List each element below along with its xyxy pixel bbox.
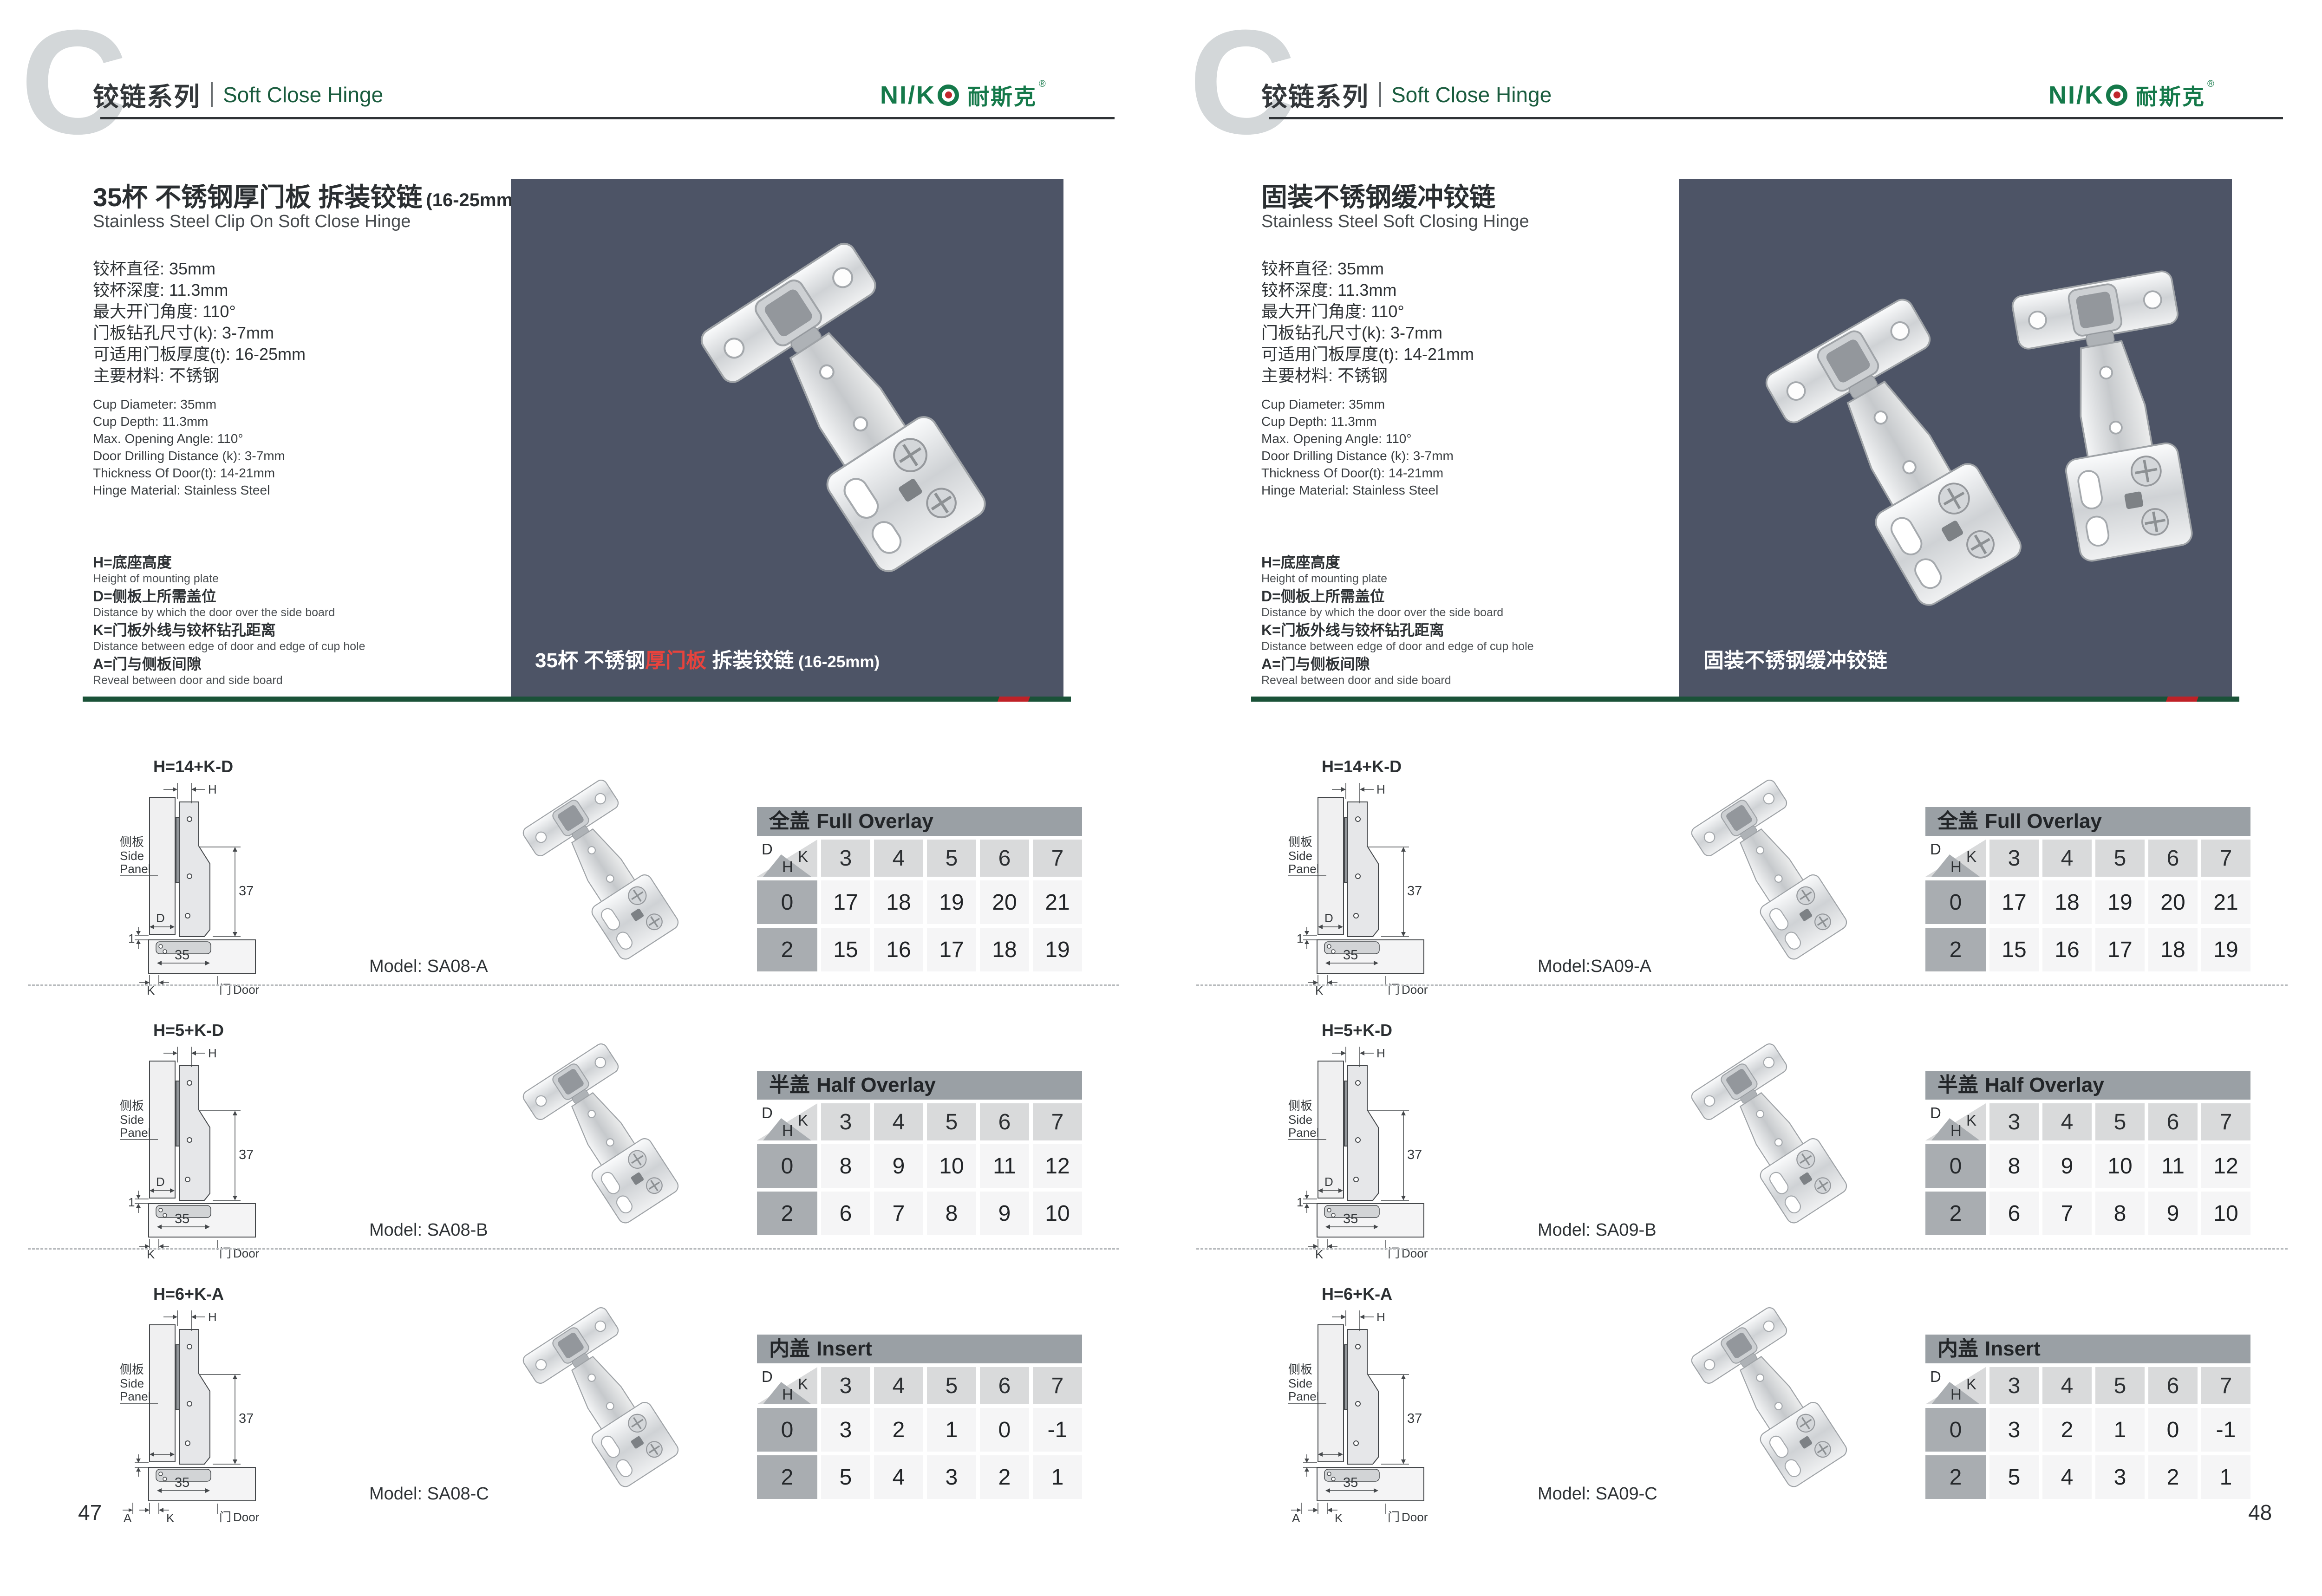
spec-line: 最大开门角度: 110° [1261,301,1474,322]
dimension-definitions: H=底座高度 Height of mounting plate D=侧板上所需盖… [1261,554,1534,689]
table-value: 1 [927,1408,976,1452]
dim-35-label: 35 [1343,948,1358,963]
table-value: 8 [1989,1144,2039,1188]
table-grid: D K H 3 4 5 6 7 0 17 18 19 20 21 2 [1925,840,2250,971]
spec-line: Max. Opening Angle: 110° [1261,430,1454,447]
brand-logo-registered: ® [2207,79,2214,90]
corner-h: H [782,1122,793,1140]
dim-35-label: 35 [175,948,189,963]
section-divider-red [998,697,1030,702]
table-value: 2 [980,1455,1029,1499]
table-value: 21 [2201,880,2250,924]
section-half-overlay: H=5+K-D H 侧板 Side Panel D 37 1 35 K 门 Do… [1168,1020,2322,1280]
k-header: 4 [2042,840,2092,877]
table-value: 3 [2095,1455,2145,1499]
series-title-cn: 铰链系列 [93,76,201,114]
brand-logo-dot-icon [2113,91,2120,98]
side-panel-label-cn: 侧板 [1288,1362,1312,1376]
brand-logo-cn: 耐斯克 [967,79,1037,111]
specs-cn: 铰杯直径: 35mm 铰杯深度: 11.3mm 最大开门角度: 110° 门板钻… [93,258,306,386]
brand-logo-dot-icon [945,91,952,98]
series-title-cn: 铰链系列 [1261,76,1369,114]
k-header: 5 [2095,840,2145,877]
spec-line: Door Drilling Distance (k): 3-7mm [1261,447,1454,464]
series-title-en: Soft Close Hinge [223,82,383,107]
side-panel-label-en: Side [120,1113,144,1127]
height-formula: H=14+K-D [1322,757,1402,776]
specs-en: Cup Diameter: 35mm Cup Depth: 11.3mm Max… [1261,396,1454,499]
dim-h-label: H [1376,1046,1385,1060]
row-separator [28,984,1119,986]
table-value: 10 [2095,1144,2145,1188]
spec-line: 门板钻孔尺寸(k): 3-7mm [1261,322,1474,344]
table-value: 16 [2042,928,2092,971]
brand-logo-o-icon [938,85,959,106]
side-panel-label-cn: 侧板 [120,835,144,849]
dim-h-label: H [1376,782,1385,796]
definition-en: Distance by which the door over the side… [93,605,365,620]
corner-h: H [1950,1122,1962,1140]
spec-line: Cup Depth: 11.3mm [93,413,285,430]
dim-1-label: 1 [1297,1195,1303,1209]
k-header: 7 [1033,840,1082,877]
table-value: 5 [1989,1455,2039,1499]
model-number: Model: SA08-A [369,957,488,977]
corner-h: H [782,858,793,876]
section-full-overlay: H=14+K-D H 侧板 Side Panel D 37 1 35 K 门 D… [0,756,1168,1016]
table-title-en: Half Overlay [816,1074,936,1096]
half-overlay-table: 半盖Half Overlay D K H 3 4 5 6 7 0 8 9 10 [757,1071,1082,1235]
section-full-overlay: H=14+K-D H 侧板 Side Panel D 37 1 35 K 门 D… [1168,756,2322,1016]
table-value: 2 [874,1408,923,1452]
model-number: Model: SA08-B [369,1220,488,1240]
k-header: 5 [2095,1367,2145,1404]
k-header: 7 [2201,1103,2250,1140]
definition-cn: H=底座高度 [1261,554,1534,571]
definition-cn: D=侧板上所需盖位 [1261,587,1534,605]
k-header: 4 [874,840,923,877]
side-panel-label-en: Panel [120,1126,151,1140]
k-header: 4 [874,1367,923,1404]
catalog-page-right: C 铰链系列 Soft Close Hinge NI/K 耐斯克 ® 固装不锈钢… [1168,0,2322,1596]
hinge-photo [1577,1023,1884,1241]
table-title-en: Full Overlay [816,810,933,833]
table-value: 1 [2095,1408,2145,1452]
table-value: 17 [1989,880,2039,924]
product-photo: 35杯 不锈钢厚门板 拆装铰链 (16-25mm) [511,179,1063,697]
side-panel-label-en: Panel [120,862,151,876]
table-title-cn: 内盖 [769,1337,810,1360]
spec-line: Max. Opening Angle: 110° [93,430,285,447]
table-value: 2 [2148,1455,2198,1499]
dim-d-label: D [156,911,165,925]
k-header: 7 [1033,1103,1082,1140]
dim-h-label: H [208,1046,217,1060]
table-corner-cell: D K H [1925,840,1986,877]
door-label-en: Door [1402,1510,1428,1524]
table-title-en: Insert [1985,1337,2041,1360]
table-value: 0 [980,1408,1029,1452]
brand-logo-o-icon [2106,85,2127,106]
brand-logo-latin: NI/K [2048,81,2104,110]
table-grid: D K H 3 4 5 6 7 0 8 9 10 11 12 2 6 [757,1103,1082,1235]
table-value: 20 [980,880,1029,924]
section-half-overlay: H=5+K-D H 侧板 Side Panel D 37 1 35 K 门 Do… [0,1020,1168,1280]
side-panel-label-cn: 侧板 [120,1362,144,1376]
k-header: 3 [821,840,870,877]
product-subtitle: Stainless Steel Clip On Soft Close Hinge [93,212,411,232]
table-title: 全盖Full Overlay [1925,807,2250,836]
header-rule [1269,117,2283,119]
spec-line: Cup Depth: 11.3mm [1261,413,1454,430]
table-value: 8 [821,1144,870,1188]
table-value: 18 [980,928,1029,971]
table-value: 11 [2148,1144,2198,1188]
h-row-label: 2 [757,928,817,971]
k-header: 3 [1989,1367,2039,1404]
h-row-label: 0 [1925,1408,1986,1452]
table-value: 3 [927,1455,976,1499]
header-rule [100,117,1115,119]
caption-pre: 35杯 不锈钢 [535,649,645,672]
table-title-cn: 全盖 [769,810,810,833]
table-title-cn: 全盖 [1937,810,1978,833]
corner-d: D [762,840,773,858]
height-formula: H=6+K-A [1322,1284,1392,1304]
spec-line: Thickness Of Door(t): 14-21mm [93,464,285,482]
installation-diagram: H 侧板 Side Panel D 37 1 35 K 门 Door [117,776,261,997]
page-header: 铰链系列 Soft Close Hinge [93,78,383,111]
h-row-label: 2 [757,1455,817,1499]
definition-en: Distance between edge of door and edge o… [1261,639,1534,654]
definition-en: Height of mounting plate [93,571,365,586]
hinge-photo [1577,1286,1884,1505]
side-panel-label-en: Side [1288,849,1312,863]
spec-line: Cup Diameter: 35mm [1261,396,1454,413]
table-value: 6 [1989,1192,2039,1235]
dim-k-label: K [1335,1511,1343,1524]
h-row-label: 2 [1925,928,1986,971]
spec-line: Thickness Of Door(t): 14-21mm [1261,464,1454,482]
h-row-label: 0 [1925,880,1986,924]
table-value: 8 [927,1192,976,1235]
insert-table: 内盖Insert D K H 3 4 5 6 7 0 3 2 1 [757,1335,1082,1499]
corner-h: H [782,1386,793,1403]
series-title-en: Soft Close Hinge [1391,82,1552,107]
row-separator [1196,984,2288,986]
catalog-page-left: C 铰链系列 Soft Close Hinge NI/K 耐斯克 ® 35杯 不… [0,0,1168,1596]
definition-cn: K=门板外线与铰杯钻孔距离 [1261,621,1534,639]
dim-d-label: D [1324,1175,1333,1189]
k-header: 5 [927,1367,976,1404]
page-number: 47 [78,1500,102,1525]
k-header: 3 [1989,1103,2039,1140]
definition-en: Distance between edge of door and edge o… [93,639,365,654]
series-divider [211,82,213,107]
row-separator [1196,1248,2288,1250]
table-value: 4 [2042,1455,2092,1499]
table-value: 17 [927,928,976,971]
corner-k: K [1966,1375,1976,1393]
series-divider [1379,82,1381,107]
corner-d: D [762,1368,773,1386]
hinge-photo [1577,759,1884,977]
spec-line: 可适用门板厚度(t): 14-21mm [1261,344,1474,365]
table-value: -1 [1033,1408,1082,1452]
definition-en: Reveal between door and side board [93,673,365,688]
full-overlay-table: 全盖Full Overlay D K H 3 4 5 6 7 0 17 18 1… [1925,807,2250,971]
product-title-suffix: (16-25mm) [426,190,519,210]
photo-caption: 固装不锈钢缓冲铰链 [1703,644,1887,673]
section-insert: H=6+K-A H 侧板 Side Panel 37 35 A K 门 Door [0,1283,1168,1544]
table-corner-cell: D K H [1925,1367,1986,1404]
table-value: 21 [1033,880,1082,924]
product-photo-image [1679,179,2232,697]
spec-line: 主要材料: 不锈钢 [93,365,306,386]
dim-1-label: 1 [128,932,135,945]
definition-cn: H=底座高度 [93,554,365,571]
corner-k: K [1966,848,1976,866]
brand-logo-registered: ® [1039,79,1046,90]
h-row-label: 2 [1925,1192,1986,1235]
k-header: 4 [2042,1103,2092,1140]
k-header: 5 [2095,1103,2145,1140]
dim-d-label: D [1324,911,1333,925]
k-header: 5 [927,1103,976,1140]
table-value: 12 [1033,1144,1082,1188]
table-value: 9 [2148,1192,2198,1235]
table-value: 6 [821,1192,870,1235]
height-formula: H=5+K-D [153,1021,224,1040]
table-value: 18 [2148,928,2198,971]
table-value: 10 [2201,1192,2250,1235]
dim-h-label: H [208,782,217,796]
dim-37-label: 37 [239,884,254,899]
table-corner-cell: D K H [757,840,817,877]
spec-line: 可适用门板厚度(t): 16-25mm [93,344,306,365]
caption-post: 拆装铰链 [706,649,794,672]
table-title-cn: 内盖 [1937,1337,1978,1360]
model-number: Model:SA09-A [1538,957,1651,977]
spec-line: Hinge Material: Stainless Steel [1261,482,1454,499]
definition-en: Reveal between door and side board [1261,673,1534,688]
installation-diagram: H 侧板 Side Panel D 37 1 35 K 门 Door [1285,776,1429,997]
k-header: 6 [980,1103,1029,1140]
table-value: 10 [1033,1192,1082,1235]
dim-a-label: A [124,1511,132,1524]
definition-cn: A=门与侧板间隙 [93,655,365,673]
insert-table: 内盖Insert D K H 3 4 5 6 7 0 3 2 1 [1925,1335,2250,1499]
spec-line: 门板钻孔尺寸(k): 3-7mm [93,322,306,344]
h-row-label: 0 [757,880,817,924]
installation-diagram: H 侧板 Side Panel D 37 1 35 K 门 Door [117,1040,261,1261]
k-header: 6 [2148,1103,2198,1140]
corner-k: K [1966,1112,1976,1129]
table-value: 1 [2201,1455,2250,1499]
table-value: 9 [980,1192,1029,1235]
side-panel-label-en: Side [120,1376,144,1390]
h-row-label: 0 [757,1144,817,1188]
k-header: 3 [821,1367,870,1404]
h-row-label: 2 [1925,1455,1986,1499]
table-title-en: Half Overlay [1985,1074,2104,1096]
dim-h-label: H [1376,1310,1385,1324]
table-value: 20 [2148,880,2198,924]
table-title-cn: 半盖 [769,1074,810,1096]
definition-cn: K=门板外线与铰杯钻孔距离 [93,621,365,639]
section-divider-green [1251,697,2239,702]
k-header: 3 [821,1103,870,1140]
table-grid: D K H 3 4 5 6 7 0 3 2 1 0 -1 2 5 [1925,1367,2250,1499]
spec-line: 铰杯深度: 11.3mm [1261,280,1474,301]
brand-logo-latin: NI/K [880,81,936,110]
table-corner-cell: D K H [1925,1103,1986,1140]
table-grid: D K H 3 4 5 6 7 0 17 18 19 20 21 2 [757,840,1082,971]
caption-suffix: (16-25mm) [794,653,880,671]
corner-k: K [798,1112,808,1129]
table-value: 18 [2042,880,2092,924]
definition-en: Height of mounting plate [1261,571,1534,586]
table-value: 5 [821,1455,870,1499]
section-divider-green [83,697,1071,702]
k-header: 7 [1033,1367,1082,1404]
specs-cn: 铰杯直径: 35mm 铰杯深度: 11.3mm 最大开门角度: 110° 门板钻… [1261,258,1474,386]
model-number: Model: SA09-C [1538,1484,1657,1504]
dim-1-label: 1 [1297,932,1303,945]
corner-k: K [798,848,808,866]
corner-d: D [1930,840,1941,858]
k-header: 5 [927,840,976,877]
side-panel-label-en: Side [1288,1376,1312,1390]
table-value: 2 [2042,1408,2092,1452]
definition-cn: D=侧板上所需盖位 [93,587,365,605]
k-header: 6 [980,1367,1029,1404]
table-value: 0 [2148,1408,2198,1452]
table-value: 15 [1989,928,2039,971]
table-value: 8 [2095,1192,2145,1235]
corner-d: D [1930,1104,1941,1122]
product-photo-image [511,179,1063,697]
table-value: 10 [927,1144,976,1188]
dimension-definitions: H=底座高度 Height of mounting plate D=侧板上所需盖… [93,554,365,689]
product-title: 固装不锈钢缓冲铰链 [1261,176,1499,214]
side-panel-label-cn: 侧板 [1288,835,1312,849]
photo-caption: 35杯 不锈钢厚门板 拆装铰链 (16-25mm) [535,644,880,673]
door-label-cn: 门 [219,1510,231,1524]
corner-d: D [762,1104,773,1122]
row-separator [28,1248,1119,1250]
table-title: 内盖Insert [1925,1335,2250,1363]
table-grid: D K H 3 4 5 6 7 0 8 9 10 11 12 2 6 [1925,1103,2250,1235]
k-header: 6 [980,840,1029,877]
spec-line: 主要材料: 不锈钢 [1261,365,1474,386]
installation-diagram: H 侧板 Side Panel 37 35 A K 门 Door [1285,1304,1429,1524]
spec-line: Hinge Material: Stainless Steel [93,482,285,499]
k-header: 4 [2042,1367,2092,1404]
table-value: 3 [821,1408,870,1452]
dim-35-label: 35 [175,1212,189,1226]
table-corner-cell: D K H [757,1367,817,1404]
door-label-cn: 门 [1388,1510,1400,1524]
side-panel-label-en: Panel [1288,862,1319,876]
k-header: 4 [874,1103,923,1140]
side-panel-label-cn: 侧板 [1288,1099,1312,1113]
table-title: 半盖Half Overlay [1925,1071,2250,1100]
table-value: 16 [874,928,923,971]
dim-k-label: K [166,1511,175,1524]
table-value: 7 [874,1192,923,1235]
table-value: 17 [821,880,870,924]
table-value: 19 [1033,928,1082,971]
product-photo: 固装不锈钢缓冲铰链 [1679,179,2232,697]
table-title-en: Insert [816,1337,872,1360]
dim-37-label: 37 [239,1411,254,1426]
table-grid: D K H 3 4 5 6 7 0 3 2 1 0 -1 2 5 [757,1367,1082,1499]
table-value: -1 [2201,1408,2250,1452]
k-header: 7 [2201,840,2250,877]
table-value: 11 [980,1144,1029,1188]
dim-37-label: 37 [1407,1147,1422,1162]
k-header: 6 [2148,1367,2198,1404]
corner-h: H [1950,858,1962,876]
caption-pre: 固装不锈钢缓冲铰链 [1703,649,1887,672]
table-value: 19 [927,880,976,924]
table-value: 7 [2042,1192,2092,1235]
table-title: 全盖Full Overlay [757,807,1082,836]
dim-37-label: 37 [1407,884,1422,899]
table-value: 9 [2042,1144,2092,1188]
definition-cn: A=门与侧板间隙 [1261,655,1534,673]
table-value: 9 [874,1144,923,1188]
installation-diagram: H 侧板 Side Panel D 37 1 35 K 门 Door [1285,1040,1429,1261]
spec-line: 最大开门角度: 110° [93,301,306,322]
table-title-cn: 半盖 [1937,1074,1978,1096]
section-insert: H=6+K-A H 侧板 Side Panel 37 35 A K 门 Door [1168,1283,2322,1544]
table-value: 18 [874,880,923,924]
door-label-en: Door [233,1510,260,1524]
caption-red: 厚门板 [645,649,706,672]
section-divider-red [2166,697,2198,702]
table-value: 19 [2201,928,2250,971]
height-formula: H=6+K-A [153,1284,224,1304]
corner-d: D [1930,1368,1941,1386]
table-title-en: Full Overlay [1985,810,2102,833]
side-panel-label-en: Side [1288,1113,1312,1127]
dim-35-label: 35 [175,1475,189,1490]
table-value: 3 [1989,1408,2039,1452]
dim-37-label: 37 [1407,1411,1422,1426]
product-title-cn: 35杯 不锈钢厚门板 拆装铰链 [93,182,422,212]
side-panel-label-cn: 侧板 [120,1099,144,1113]
spec-line: 铰杯直径: 35mm [93,258,306,280]
k-header: 3 [1989,840,2039,877]
side-panel-label-en: Panel [120,1389,151,1403]
height-formula: H=14+K-D [153,757,233,776]
corner-k: K [798,1375,808,1393]
page-header: 铰链系列 Soft Close Hinge [1261,78,1552,111]
definition-en: Distance by which the door over the side… [1261,605,1534,620]
hinge-photo [409,1023,715,1241]
table-value: 19 [2095,880,2145,924]
dim-37-label: 37 [239,1147,254,1162]
product-title-cn: 固装不锈钢缓冲铰链 [1261,182,1495,212]
table-value: 1 [1033,1455,1082,1499]
table-value: 17 [2095,928,2145,971]
spec-line: 铰杯深度: 11.3mm [93,280,306,301]
table-value: 12 [2201,1144,2250,1188]
table-value: 4 [874,1455,923,1499]
k-header: 7 [2201,1367,2250,1404]
